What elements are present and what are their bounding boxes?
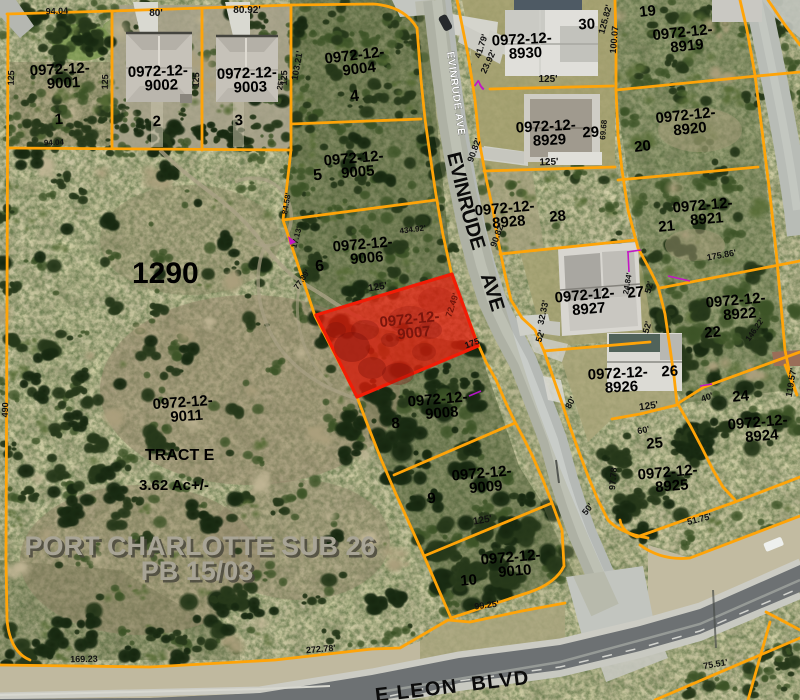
svg-text:1290: 1290	[132, 257, 199, 290]
svg-text:8930: 8930	[508, 44, 542, 63]
svg-text:PB 15/03: PB 15/03	[141, 556, 254, 586]
svg-text:8922: 8922	[722, 304, 757, 324]
svg-text:80': 80'	[149, 8, 163, 19]
svg-text:8929: 8929	[532, 131, 566, 150]
svg-text:10: 10	[460, 571, 478, 589]
svg-text:30: 30	[578, 16, 596, 34]
svg-text:9008: 9008	[424, 403, 459, 423]
svg-text:125: 125	[191, 72, 202, 87]
svg-text:8926: 8926	[604, 378, 638, 397]
svg-text:9006: 9006	[349, 248, 384, 268]
svg-text:8924: 8924	[744, 426, 779, 446]
svg-text:8927: 8927	[571, 299, 606, 319]
svg-text:9003: 9003	[233, 78, 267, 96]
svg-text:4: 4	[349, 88, 360, 106]
svg-text:9001: 9001	[46, 74, 80, 93]
svg-text:21: 21	[658, 217, 676, 235]
svg-text:490: 490	[0, 402, 10, 417]
svg-text:TRACT E: TRACT E	[145, 447, 215, 464]
svg-text:25': 25'	[275, 78, 286, 90]
svg-text:97.78: 97.78	[607, 467, 619, 490]
svg-text:19: 19	[638, 2, 656, 21]
svg-text:8921: 8921	[689, 209, 724, 229]
svg-text:125': 125'	[538, 74, 557, 85]
svg-text:80.92': 80.92'	[233, 5, 260, 16]
svg-text:9005: 9005	[340, 162, 375, 182]
svg-text:3: 3	[234, 112, 243, 129]
svg-text:20: 20	[633, 137, 651, 156]
svg-text:125: 125	[6, 70, 17, 85]
svg-text:9010: 9010	[497, 561, 532, 581]
svg-text:69.68: 69.68	[598, 119, 609, 140]
svg-text:28: 28	[549, 207, 567, 225]
svg-text:125': 125'	[539, 157, 558, 169]
svg-text:94.04: 94.04	[45, 6, 68, 17]
svg-text:9009: 9009	[468, 477, 503, 497]
svg-text:2: 2	[152, 113, 161, 130]
svg-text:9002: 9002	[144, 76, 178, 94]
svg-text:169.23: 169.23	[70, 654, 98, 664]
svg-text:8920: 8920	[672, 119, 707, 139]
svg-text:1: 1	[54, 111, 63, 128]
svg-text:9011: 9011	[170, 407, 204, 426]
svg-text:8925: 8925	[654, 476, 689, 496]
svg-text:9: 9	[427, 490, 437, 508]
svg-text:24: 24	[732, 387, 751, 405]
svg-text:3.62 Ac+/-: 3.62 Ac+/-	[139, 477, 209, 494]
svg-text:5: 5	[312, 167, 322, 185]
svg-text:94.04: 94.04	[44, 138, 65, 148]
svg-text:6: 6	[314, 258, 324, 276]
svg-text:29: 29	[582, 124, 600, 142]
svg-text:26: 26	[661, 363, 679, 381]
svg-text:9007: 9007	[396, 323, 431, 343]
svg-text:25: 25	[646, 434, 664, 452]
svg-text:8919: 8919	[669, 36, 704, 56]
svg-text:8: 8	[391, 415, 401, 433]
svg-text:22: 22	[704, 323, 722, 341]
svg-text:125: 125	[100, 74, 111, 89]
